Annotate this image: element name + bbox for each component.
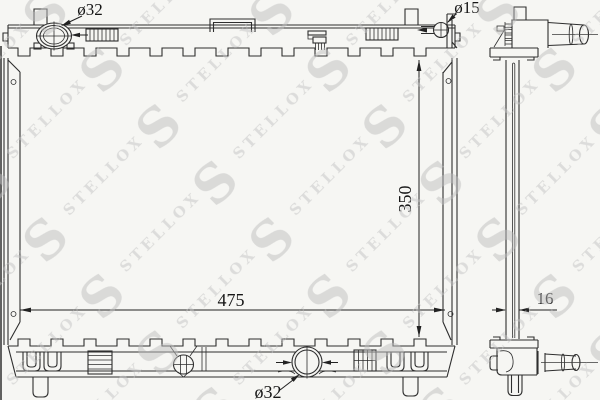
watermark-layer (0, 0, 600, 400)
radiator-technical-drawing: S STELLOX (0, 0, 600, 400)
drawing-canvas: S STELLOX (0, 0, 600, 400)
